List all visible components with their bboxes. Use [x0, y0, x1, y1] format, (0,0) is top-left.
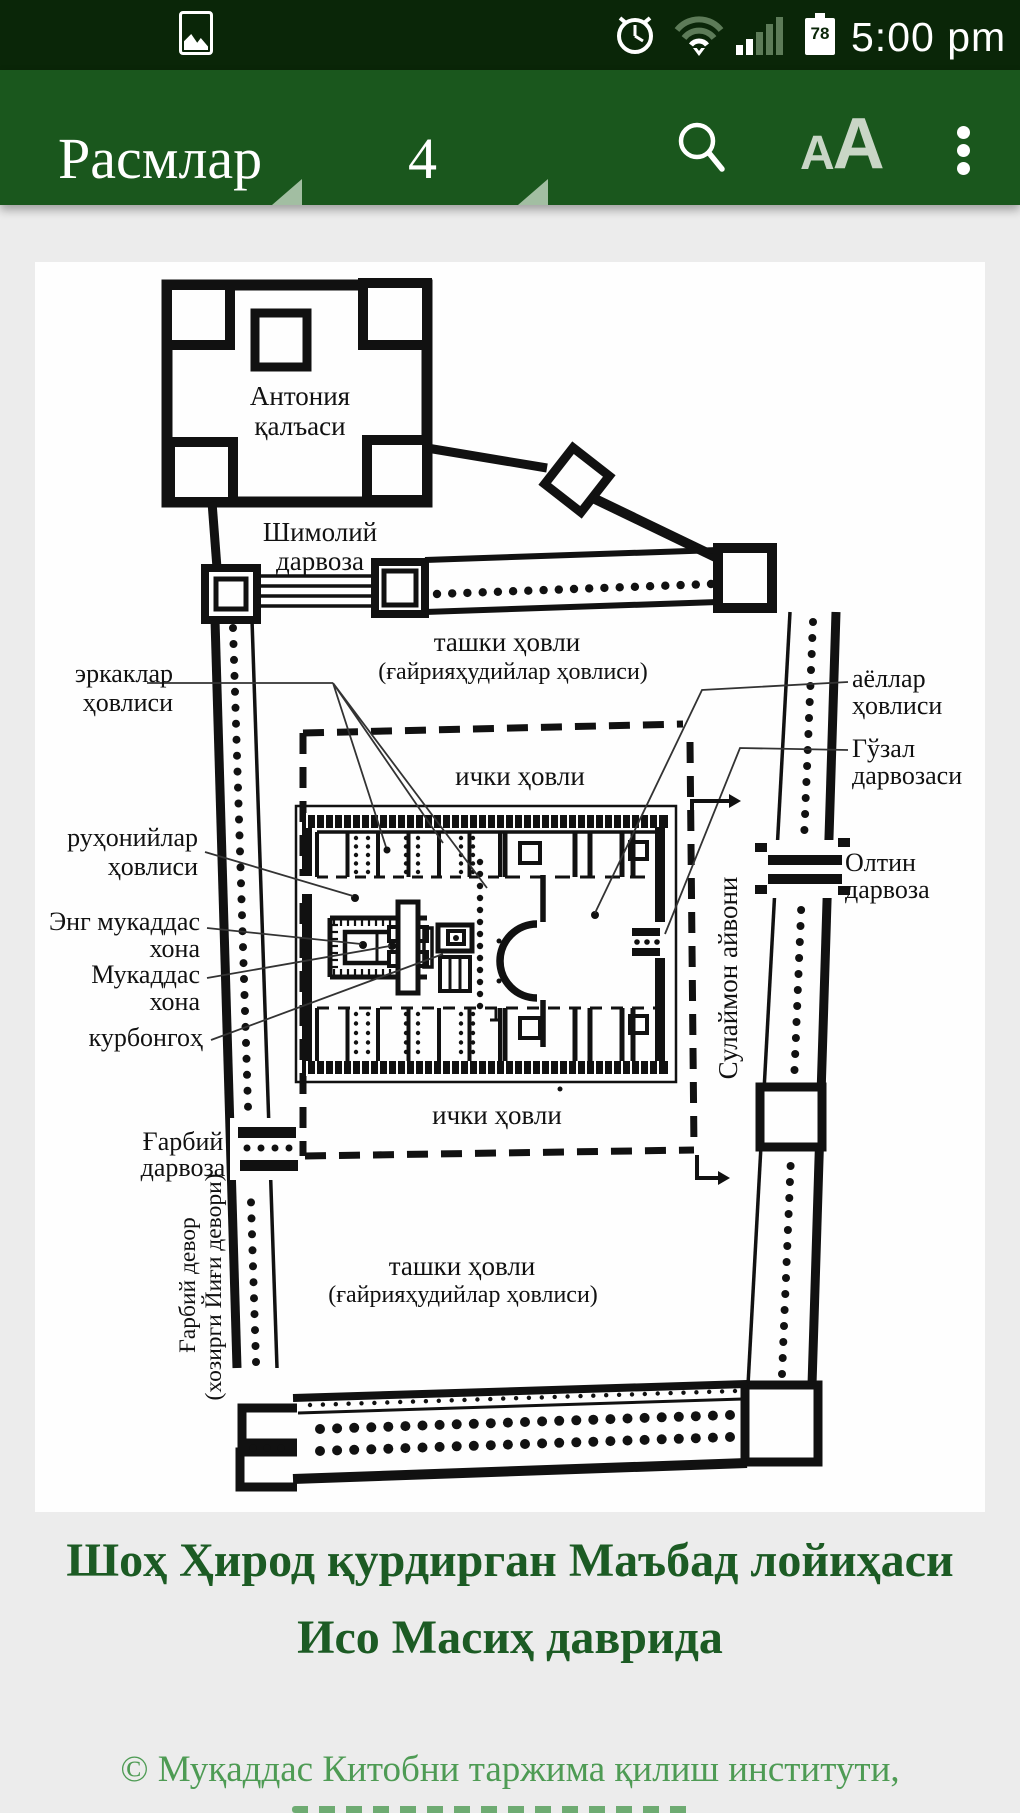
label-beautiful-gate: Гўзал — [852, 734, 915, 763]
svg-text:хона: хона — [150, 934, 201, 963]
app-title[interactable]: Расмлар — [58, 130, 262, 188]
label-holy-place: Мукаддас — [91, 960, 200, 989]
label-most-holy: Энг мукаддас — [49, 907, 200, 936]
copyright-line: © Муқаддас Китобни таржима қилиш институ… — [0, 1748, 1020, 1791]
page-number[interactable]: 4 — [408, 130, 437, 188]
copyright-line2-clipped — [292, 1806, 692, 1813]
wifi-icon — [672, 12, 726, 56]
golden-gate — [755, 838, 850, 898]
svg-text:қалъаси: қалъаси — [254, 411, 345, 441]
svg-text:(ғайрияҳудийлар ҳовлиси): (ғайрияҳудийлар ҳовлиси) — [328, 1282, 598, 1308]
label-western-wall: Ғарбий девор — [175, 1217, 201, 1353]
entry-arrow-south — [697, 1155, 730, 1185]
label-outer-court-top: ташки ҳовли — [434, 627, 581, 657]
image-notification-icon — [179, 11, 213, 55]
svg-text:ҳовлиси: ҳовлиси — [83, 688, 173, 717]
figure-caption: Шоҳ Ҳирод қурдирган Маъбад лойиҳаси Исо … — [0, 1522, 1020, 1676]
svg-text:хона: хона — [150, 987, 201, 1016]
app-bar: Расмлар 4 AA — [0, 70, 1020, 205]
east-wall-tower — [760, 1087, 822, 1147]
battery-percent: 78 — [811, 24, 830, 44]
font-size-icon[interactable]: AA — [800, 116, 885, 172]
status-time: 5:00 pm — [851, 14, 1006, 61]
ne-corner-tower — [718, 548, 772, 608]
temple-plan-figure[interactable]: Антония қалъаси Шимолий дарвоза ташки ҳо… — [35, 262, 985, 1512]
font-icon-small-a: A — [800, 135, 835, 172]
nicanor-stairs — [500, 924, 537, 998]
se-corner-tower — [745, 1385, 818, 1462]
label-west-gate: Ғарбий — [143, 1127, 224, 1156]
label-solomons-porch: Сулаймон айвони — [713, 877, 743, 1080]
label-altar: курбонгоҳ — [89, 1023, 203, 1052]
svg-text:(ғайрияҳудийлар ҳовлиси): (ғайрияҳудийлар ҳовлиси) — [378, 659, 648, 685]
search-icon[interactable] — [676, 118, 728, 178]
caption-line1: Шоҳ Ҳирод қурдирган Маъбад лойиҳаси — [0, 1522, 1020, 1599]
page-dropdown-arrow-icon[interactable] — [518, 179, 548, 205]
svg-text:дарвоза: дарвоза — [845, 875, 930, 904]
signal-icon — [736, 14, 786, 56]
label-golden-gate: Олтин — [845, 848, 916, 877]
battery-icon: 78 — [805, 13, 835, 55]
north-colonnade — [425, 550, 718, 612]
svg-text:ҳовлиси: ҳовлиси — [852, 691, 942, 720]
east-colonnade — [748, 612, 850, 1385]
caption-line2: Исо Масиҳ даврида — [0, 1599, 1020, 1676]
font-icon-large-a: A — [833, 116, 885, 172]
overflow-menu-icon[interactable] — [957, 126, 970, 175]
label-north-gate: Шимолий — [263, 517, 377, 547]
label-mens-court: эркаклар — [75, 659, 173, 688]
svg-text:(хозирги Йиғи девори): (хозирги Йиғи девори) — [201, 1174, 227, 1401]
label-priests-court: руҳонийлар — [67, 823, 198, 852]
svg-text:ҳовлиси: ҳовлиси — [108, 852, 198, 881]
west-colonnade — [215, 620, 300, 1368]
svg-text:дарвозаси: дарвозаси — [852, 761, 962, 790]
label-antonia: Антония — [250, 381, 350, 411]
title-dropdown-arrow-icon[interactable] — [272, 179, 302, 205]
south-royal-stoa — [240, 1384, 747, 1487]
altar — [438, 925, 472, 991]
west-gate — [230, 1118, 300, 1180]
alarm-icon — [611, 9, 659, 59]
label-inner-court-top: ички ҳовли — [455, 761, 585, 791]
label-inner-court-bottom: ички ҳовли — [432, 1100, 562, 1130]
label-womens-court: аёллар — [852, 664, 926, 693]
beautiful-gate — [632, 928, 660, 956]
temple-plan-diagram: Антония қалъаси Шимолий дарвоза ташки ҳо… — [35, 262, 985, 1512]
svg-text:дарвоза: дарвоза — [276, 546, 364, 576]
label-outer-court-bottom: ташки ҳовли — [389, 1251, 536, 1281]
status-bar: 78 5:00 pm — [0, 0, 1020, 70]
